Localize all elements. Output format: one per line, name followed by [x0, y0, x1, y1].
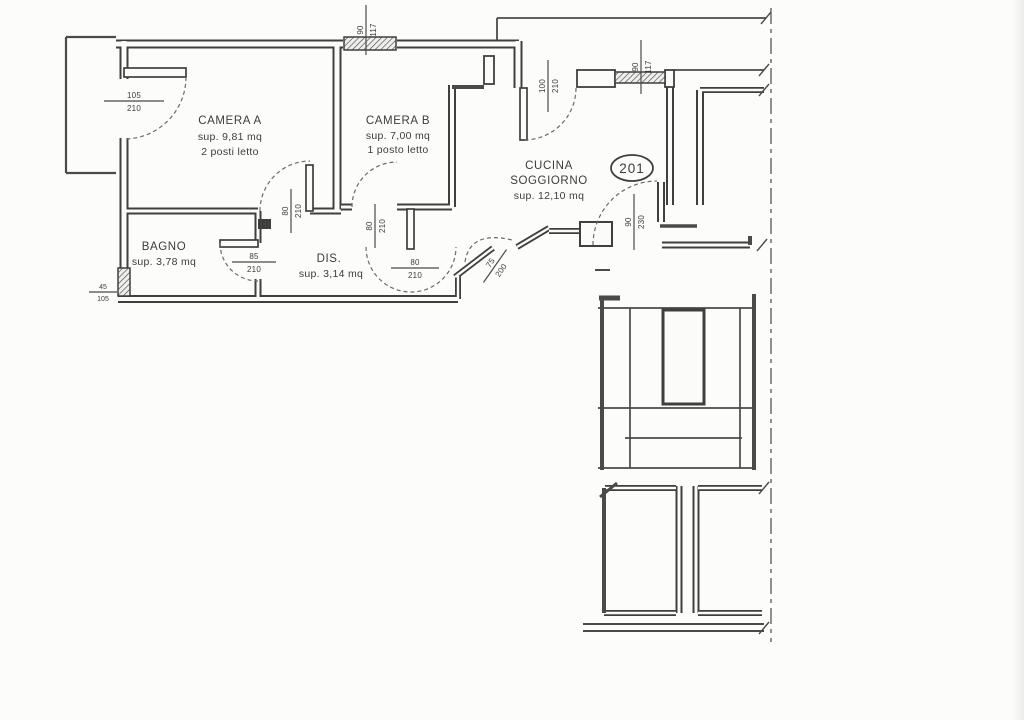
door-swing-arc [352, 162, 397, 207]
entrance-door-width: 90 [624, 217, 633, 227]
diagonal-door-width: 75 [484, 256, 497, 269]
walls-layer [66, 8, 771, 642]
door-leaf [306, 165, 313, 211]
unit-number-text: 201 [619, 161, 645, 176]
camera-b-window-height: 117 [369, 23, 378, 37]
cucina-area: sup. 12,10 mq [514, 190, 584, 202]
dis-cucina-door-width: 80 [410, 258, 420, 267]
dimension-label-camera-a-door: 80210 [281, 189, 303, 233]
door-leaf [220, 240, 258, 247]
room-label-bagno: BAGNO sup. 3,78 mq [132, 241, 196, 268]
bagno-door-width: 85 [249, 252, 259, 261]
dimension-label-camera-b-door: 80210 [365, 204, 387, 248]
cucina-window-width: 90 [631, 62, 640, 72]
camera-a-name: CAMERA A [198, 115, 262, 127]
hall-opening-width: 100 [538, 79, 547, 93]
camera-b-area: sup. 7,00 mq [366, 130, 430, 142]
wall-core [517, 228, 549, 247]
wall-pilaster [258, 219, 271, 229]
camera-a-door-width: 80 [281, 206, 290, 216]
bagno-area: sup. 3,78 mq [132, 256, 196, 268]
door-swing-arc [366, 247, 456, 292]
camera-b-window-width: 90 [356, 25, 365, 35]
room-label-camera-a: CAMERA A sup. 9,81 mq 2 posti letto [198, 115, 262, 158]
floor-plan-drawing: CAMERA A sup. 9,81 mq 2 posti letto CAME… [0, 0, 1024, 720]
room-label-camera-b: CAMERA B sup. 7,00 mq 1 posto letto [366, 115, 430, 156]
dimension-label-entrance-door: 90230 [624, 194, 646, 250]
dimension-label-dis-cucina-door: 80210 [391, 258, 439, 280]
wall-pier [484, 56, 494, 84]
room-label-cucina-soggiorno: CUCINA SOGGIORNO sup. 12,10 mq [510, 160, 588, 202]
camera-b-name: CAMERA B [366, 115, 430, 127]
camera-b-door-width: 80 [365, 221, 374, 231]
cucina-name: CUCINA [525, 160, 573, 172]
window-pier [577, 70, 615, 87]
balcony-door-height: 210 [127, 104, 141, 113]
cucina-window-height: 117 [644, 60, 653, 74]
camera-b-note: 1 posto letto [367, 144, 428, 156]
window-glazing [615, 72, 665, 83]
window-glazing [118, 268, 130, 296]
scanned-floor-plan-page: CAMERA A sup. 9,81 mq 2 posti letto CAME… [0, 0, 1024, 720]
camera-b-door-height: 210 [378, 219, 387, 233]
bagno-door-height: 210 [247, 265, 261, 274]
dimension-label-diagonal-door: 75200 [475, 244, 516, 289]
entrance-door-height: 230 [637, 215, 646, 229]
balcony-door-width: 105 [127, 91, 141, 100]
door-swing-arc [524, 88, 576, 140]
dimension-label-hall-opening: 100210 [538, 60, 560, 112]
camera-a-door-height: 210 [294, 204, 303, 218]
dimension-tick [757, 239, 767, 251]
entry-jamb-block [580, 222, 612, 246]
soggiorno-name: SOGGIORNO [510, 175, 588, 187]
dimension-label-cucina-window: 90117 [631, 40, 653, 94]
dis-cucina-door-height: 210 [408, 271, 422, 280]
camera-a-note: 2 posti letto [201, 146, 259, 158]
unit-number-badge: 201 [611, 155, 653, 181]
bagno-window-width: 45 [99, 284, 107, 291]
bagno-window-height: 105 [97, 296, 109, 303]
dimension-label-bagno-door: 85210 [232, 252, 276, 274]
room-label-dis: DIS. sup. 3,14 mq [299, 253, 363, 280]
window-glazing [344, 37, 396, 50]
dimension-label-bagno-window: 45105 [89, 284, 117, 303]
door-leaf [520, 88, 527, 140]
dis-area: sup. 3,14 mq [299, 268, 363, 280]
camera-a-area: sup. 9,81 mq [198, 131, 262, 143]
hall-opening-height: 210 [551, 79, 560, 93]
door-leaf [407, 209, 414, 249]
dimension-label-balcony-door: 105210 [104, 91, 164, 113]
bagno-name: BAGNO [142, 241, 187, 253]
door-leaf [124, 68, 186, 77]
window-pier [665, 70, 674, 87]
elevator-shaft [663, 310, 704, 404]
door-swing-arc [260, 161, 310, 211]
dis-name: DIS. [317, 253, 342, 265]
